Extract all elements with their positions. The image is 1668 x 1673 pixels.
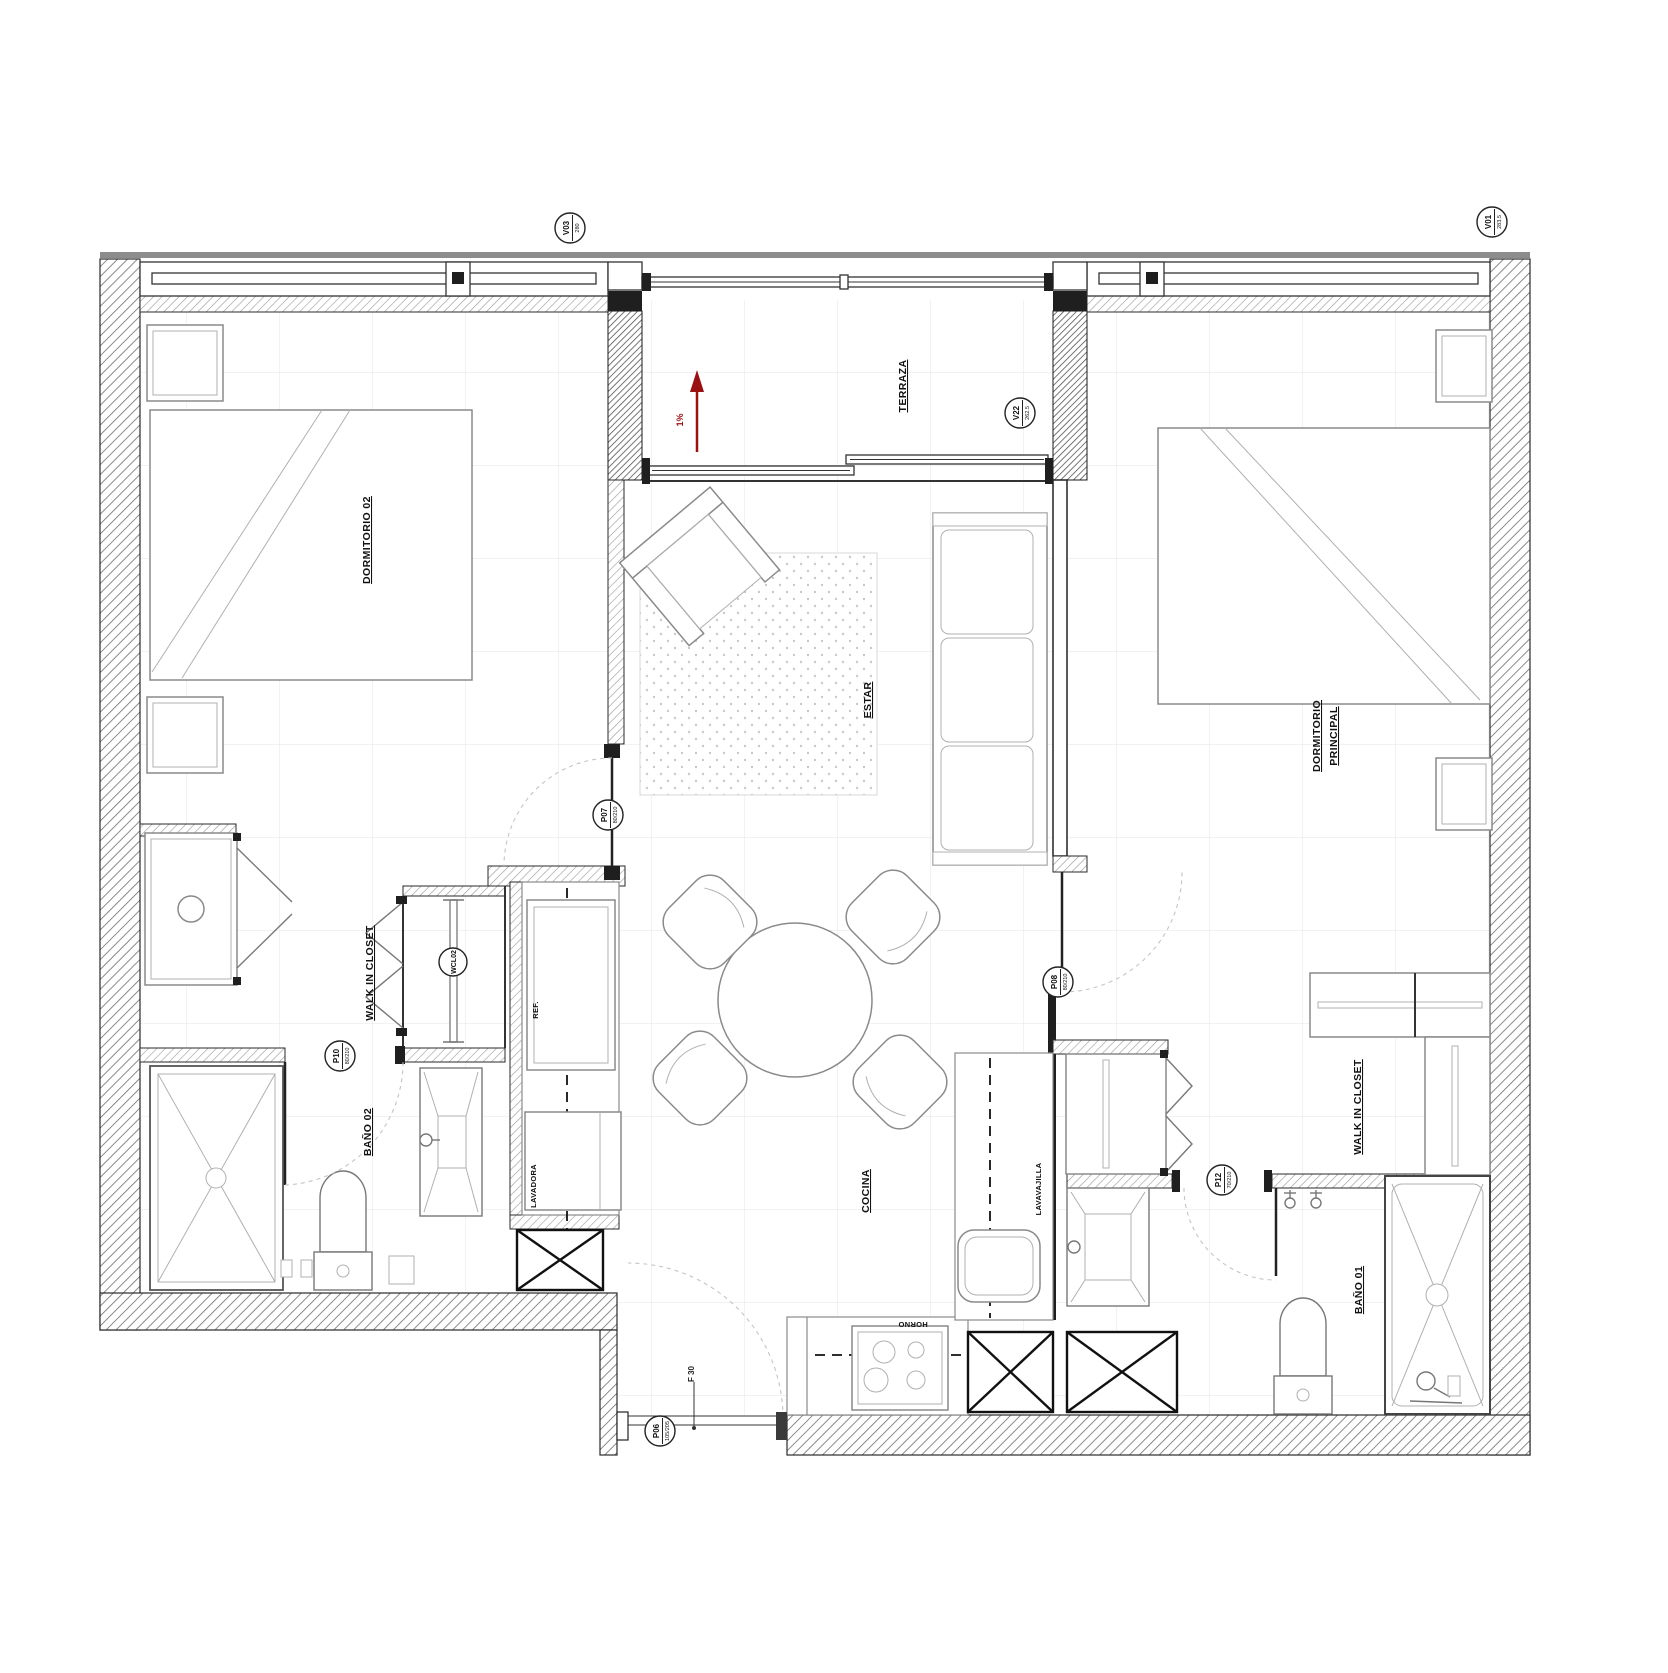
tp-holder-2 (301, 1260, 312, 1277)
toilet-02-bowl (320, 1171, 366, 1252)
label-dormitorio02: DORMITORIO 02 (361, 496, 373, 584)
door-tag-p06: P06 105/205 (645, 1416, 675, 1446)
sofa-cushion-1 (941, 530, 1033, 634)
door-tag-p10: P10 80/210 (325, 1041, 355, 1071)
svg-text:105/205: 105/205 (665, 1421, 671, 1441)
bed-principal (1158, 428, 1490, 704)
svg-text:283.5: 283.5 (1497, 215, 1503, 229)
svg-text:P12: P12 (1214, 1172, 1223, 1187)
label-dorm-principal-1: DORMITORIO (1311, 700, 1323, 772)
svg-text:P10: P10 (332, 1048, 341, 1063)
bath02-top-wall (140, 1048, 285, 1062)
door-tag-p12: P12 70/210 (1207, 1165, 1237, 1195)
shower-drain-02 (206, 1168, 226, 1188)
sofa-wall-stub (1053, 856, 1087, 872)
svg-text:P08: P08 (1050, 974, 1059, 989)
label-f30: F 30 (687, 1365, 696, 1382)
wall-below-washer (510, 1215, 619, 1229)
label-terraza: TERRAZA (897, 360, 909, 413)
terrace-column-right (1053, 311, 1087, 480)
burner-3 (864, 1368, 888, 1392)
svg-text:280: 280 (575, 223, 581, 232)
closet-bottom-wall (403, 1048, 505, 1062)
closet-top-wall (403, 886, 505, 896)
wall-below-left-column (608, 480, 624, 744)
window-tag-v03: V03 280 (555, 213, 585, 243)
sofa-cushion-2 (941, 638, 1033, 742)
window-tag-v22: V22 262.5 (1005, 398, 1035, 428)
svg-text:WCL02: WCL02 (451, 950, 458, 974)
window-sill-left (140, 296, 608, 312)
left-wall (100, 259, 140, 1330)
window-dorm02-glass (152, 273, 596, 284)
label-wic-left: WALK IN CLOSET (364, 925, 376, 1021)
svg-text:P07: P07 (600, 807, 609, 822)
bin-02 (389, 1256, 414, 1284)
vestibule-closet (1066, 1054, 1166, 1174)
terrace-column-left (608, 311, 642, 480)
bath01-north-wall-left (1067, 1174, 1172, 1188)
wall-below-right-column (1053, 480, 1067, 856)
svg-text:P06: P06 (652, 1423, 661, 1438)
label-dishwasher: LAVAVAJILLA (1034, 1162, 1043, 1215)
wardrobe-knob (178, 896, 204, 922)
svg-text:V22: V22 (1012, 405, 1021, 420)
band-gap-left (608, 262, 642, 290)
kitchen-left-wall (510, 882, 522, 1215)
door-p06-jamb-left (617, 1412, 628, 1440)
closet-tag-wcl02: WCL02 (439, 948, 467, 976)
right-wall (1490, 259, 1530, 1455)
floor-plan-page: 1% DORMITORIO 02 TERRAZA DORMITORIO PRIN… (0, 0, 1668, 1668)
label-dorm-principal-2: PRINCIPAL (1328, 706, 1340, 766)
faucet-01 (1068, 1241, 1080, 1253)
svg-text:80/210: 80/210 (345, 1048, 351, 1065)
door-p06-jamb-right (776, 1412, 787, 1440)
washer (525, 1112, 621, 1210)
door-tag-p08: P08 80/210 (1043, 967, 1073, 997)
sofa-cushion-3 (941, 746, 1033, 850)
window-sill-right (1087, 296, 1490, 312)
label-washer: LAVADORA (529, 1164, 538, 1208)
label-fridge: REF. (531, 1001, 540, 1018)
slope-label: 1% (675, 413, 685, 426)
shower-drain-01 (1426, 1284, 1448, 1306)
svg-text:262.5: 262.5 (1025, 406, 1031, 420)
svg-text:70/210: 70/210 (1227, 1172, 1233, 1189)
window-tag-v01: V01 283.5 (1477, 207, 1507, 237)
label-oven: HORNO (898, 1320, 927, 1329)
outside-notch (100, 1330, 600, 1420)
railing-mid-post (840, 275, 848, 289)
header-left (608, 291, 642, 311)
tp-holder-1 (281, 1260, 292, 1277)
door-tag-p07: P07 80/210 (593, 800, 623, 830)
burner-2 (908, 1342, 924, 1358)
faucet-02 (420, 1134, 432, 1146)
bed-02 (150, 410, 472, 680)
svg-text:V01: V01 (1484, 214, 1493, 229)
label-wic-right: WALK IN CLOSET (1352, 1059, 1364, 1155)
header-right (1053, 291, 1087, 311)
svg-text:80/210: 80/210 (1063, 974, 1069, 991)
burner-1 (873, 1341, 895, 1363)
bottom-wall (787, 1415, 1530, 1455)
label-cocina: COCINA (860, 1169, 872, 1213)
label-estar: ESTAR (862, 682, 874, 719)
floor-plan-drawing: 1% DORMITORIO 02 TERRAZA DORMITORIO PRIN… (0, 0, 1668, 1668)
label-bano02: BAÑO 02 (361, 1108, 374, 1156)
vestibule-top-wall (1053, 1040, 1168, 1054)
top-facade-line (100, 252, 1530, 258)
label-bano01: BAÑO 01 (1352, 1266, 1365, 1314)
toilet-01-bowl (1280, 1298, 1326, 1376)
svg-text:80/210: 80/210 (613, 807, 619, 824)
band-gap-right (1053, 262, 1087, 290)
entry-left-wall (600, 1330, 617, 1455)
bottom-left-wall (100, 1293, 617, 1330)
sofa (933, 513, 1047, 865)
burner-4 (907, 1371, 925, 1389)
svg-text:V03: V03 (562, 220, 571, 235)
